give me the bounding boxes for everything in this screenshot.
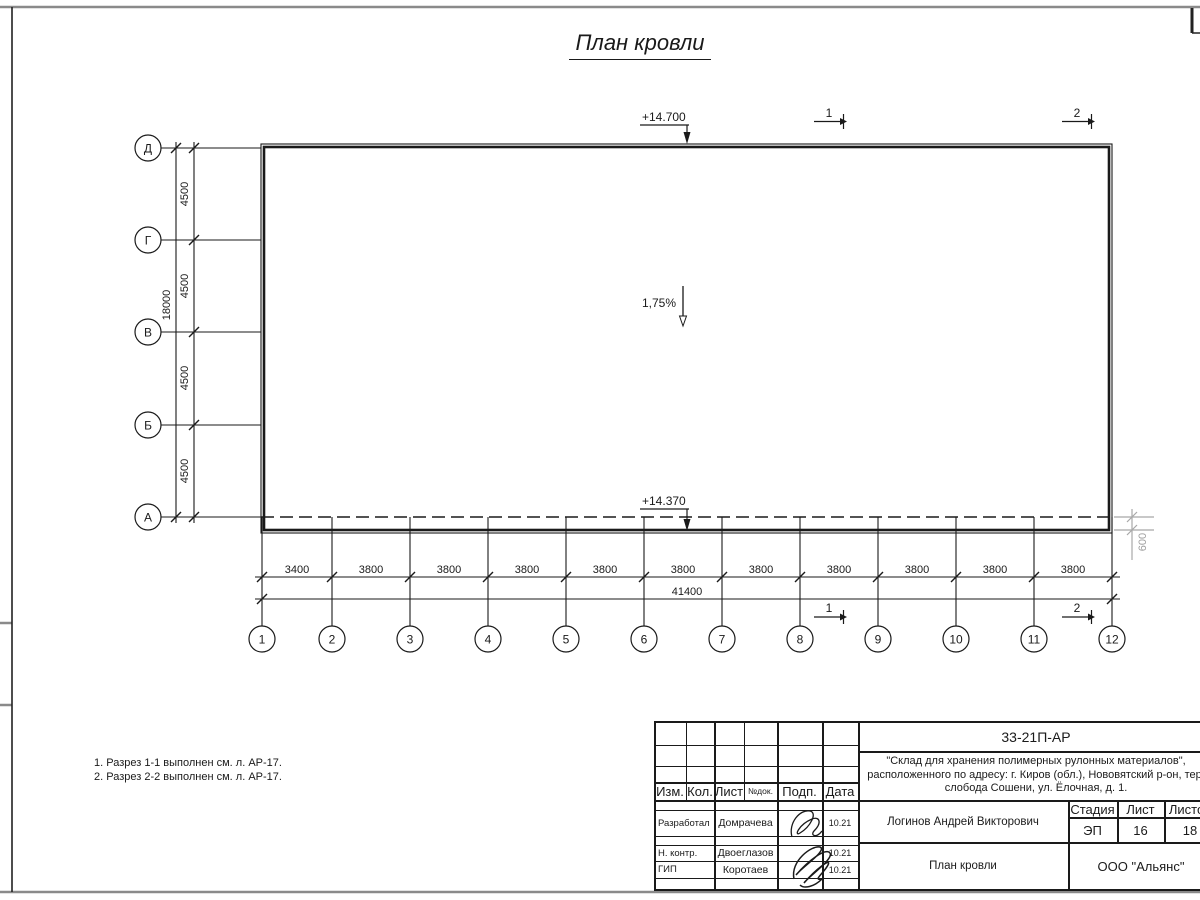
section-mark-1-bottom: 1 bbox=[814, 601, 847, 624]
dim-bottom-7: 3800 bbox=[749, 564, 773, 576]
section-2-label-bottom: 2 bbox=[1074, 601, 1081, 615]
axis-label-v: В bbox=[144, 326, 152, 340]
company-name: ООО "Альянс" bbox=[1068, 842, 1200, 890]
role-ncontrol: Н. контр. bbox=[654, 845, 718, 861]
page-title-text: План кровли bbox=[569, 30, 710, 60]
stage-label: Стадия bbox=[1068, 800, 1117, 818]
dim-left-3: 4500 bbox=[179, 366, 191, 390]
dim-bottom-5: 3800 bbox=[593, 564, 617, 576]
elevation-mark-top: +14.700 bbox=[640, 110, 691, 144]
title-block: Изм. Кол. Лист №док. Подп. Дата Разработ… bbox=[654, 721, 1200, 891]
col-header-ndok: №док. bbox=[744, 782, 777, 800]
drawing-name: План кровли bbox=[858, 842, 1068, 890]
sheet-label: Лист bbox=[1117, 800, 1164, 818]
slope-annotation: 1,75% bbox=[642, 286, 687, 326]
sheets-label: Листов bbox=[1164, 800, 1200, 818]
axis-label-8: 8 bbox=[797, 633, 804, 647]
dim-overhang: 600 bbox=[1137, 533, 1149, 551]
dim-left-1: 4500 bbox=[179, 182, 191, 206]
chief-name: Логинов Андрей Викторович bbox=[858, 800, 1068, 843]
signature-gip bbox=[794, 847, 831, 887]
section-1-label-bottom: 1 bbox=[826, 601, 833, 615]
roof-outline-inner bbox=[264, 147, 1109, 530]
axis-label-3: 3 bbox=[407, 633, 414, 647]
axis-label-g: Г bbox=[145, 234, 152, 248]
dim-bottom-8: 3800 bbox=[827, 564, 851, 576]
axis-label-10: 10 bbox=[949, 633, 963, 647]
sheets-value: 18 bbox=[1164, 818, 1200, 842]
project-line-3: слобода Сошени, ул. Ёлочная, д. 1. bbox=[858, 782, 1200, 796]
elevation-eave-value: +14.370 bbox=[642, 494, 686, 508]
dim-bottom-total: 41400 bbox=[672, 586, 703, 598]
stage-value: ЭП bbox=[1068, 818, 1117, 842]
axis-label-6: 6 bbox=[641, 633, 648, 647]
role-gip: ГИП bbox=[654, 861, 718, 878]
notes: 1. Разрез 1-1 выполнен см. л. АР-17. 2. … bbox=[94, 757, 282, 784]
section-2-label: 2 bbox=[1074, 106, 1081, 120]
axis-label-12: 12 bbox=[1105, 633, 1119, 647]
sheet-value: 16 bbox=[1117, 818, 1164, 842]
dim-bottom-4: 3800 bbox=[515, 564, 539, 576]
axis-label-7: 7 bbox=[719, 633, 726, 647]
dim-left-total: 18000 bbox=[161, 290, 173, 321]
col-header-data: Дата bbox=[822, 782, 858, 800]
project-line-1: "Склад для хранения полимерных рулонных … bbox=[858, 755, 1200, 769]
drawing-sheet: { "drawing_title": "План кровли", "plan"… bbox=[0, 0, 1200, 900]
axis-label-d: Д bbox=[144, 142, 152, 156]
axis-label-a: А bbox=[144, 511, 152, 525]
axis-label-11: 11 bbox=[1028, 633, 1041, 647]
role-developer: Разработал bbox=[654, 810, 718, 836]
axis-label-1: 1 bbox=[259, 633, 266, 647]
doc-number: 33-21П-АР bbox=[858, 721, 1200, 752]
dim-bottom-11: 3800 bbox=[1061, 564, 1085, 576]
elevation-top-value: +14.700 bbox=[642, 110, 686, 124]
dim-bottom-3: 3800 bbox=[437, 564, 461, 576]
signature-developer bbox=[791, 811, 822, 837]
axis-label-2: 2 bbox=[329, 633, 336, 647]
dim-bottom-2: 3800 bbox=[359, 564, 383, 576]
section-mark-2-bottom: 2 bbox=[1062, 601, 1095, 624]
col-header-podp: Подп. bbox=[777, 782, 822, 800]
bottom-axis-circles bbox=[249, 626, 1125, 652]
dim-bottom-1: 3400 bbox=[285, 564, 309, 576]
dim-bottom-6: 3800 bbox=[671, 564, 695, 576]
slope-value: 1,75% bbox=[642, 296, 676, 310]
project-line-2: расположенного по адресу: г. Киров (обл.… bbox=[858, 769, 1200, 783]
elevation-mark-eave: +14.370 bbox=[640, 494, 691, 531]
col-header-izm: Изм. bbox=[654, 782, 686, 800]
section-mark-2-top: 2 bbox=[1062, 106, 1095, 129]
dim-bottom-10: 3800 bbox=[983, 564, 1007, 576]
project-description: "Склад для хранения полимерных рулонных … bbox=[858, 755, 1200, 796]
section-mark-1-top: 1 bbox=[814, 106, 847, 129]
note-line-2: 2. Разрез 2-2 выполнен см. л. АР-17. bbox=[94, 771, 282, 785]
dim-bottom-9: 3800 bbox=[905, 564, 929, 576]
axis-label-9: 9 bbox=[875, 633, 882, 647]
dim-left-2: 4500 bbox=[179, 274, 191, 298]
col-header-kol: Кол. bbox=[686, 782, 714, 800]
page-title: План кровли bbox=[480, 30, 800, 60]
section-1-label: 1 bbox=[826, 106, 833, 120]
axis-label-5: 5 bbox=[563, 633, 570, 647]
axis-label-4: 4 bbox=[485, 633, 492, 647]
note-line-1: 1. Разрез 1-1 выполнен см. л. АР-17. bbox=[94, 757, 282, 771]
axis-label-b: Б bbox=[144, 419, 152, 433]
col-header-list: Лист bbox=[714, 782, 744, 800]
roof-outline-outer bbox=[261, 144, 1112, 533]
dim-left-4: 4500 bbox=[179, 459, 191, 483]
